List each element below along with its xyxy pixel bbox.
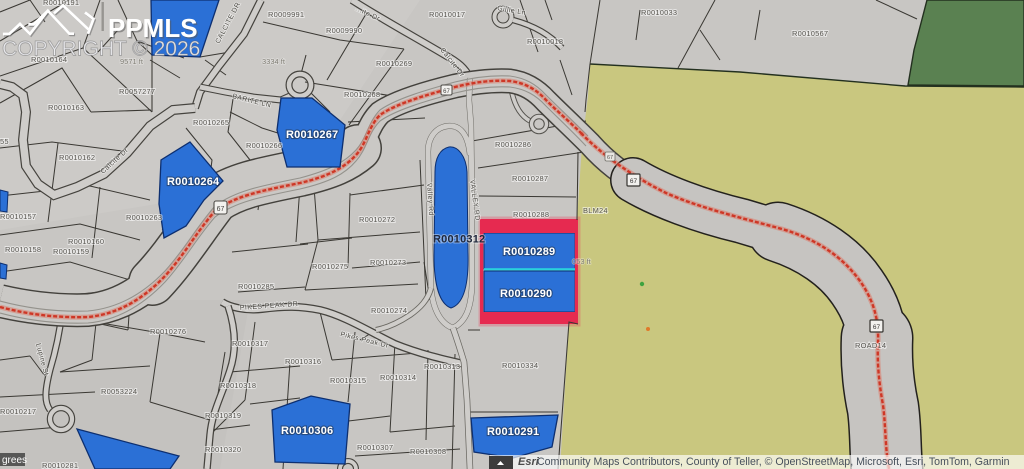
svg-text:R0010319: R0010319 xyxy=(205,411,241,420)
svg-text:R0010265: R0010265 xyxy=(193,118,229,127)
svg-text:R0010334: R0010334 xyxy=(502,361,538,370)
svg-text:R0010281: R0010281 xyxy=(42,461,78,469)
svg-text:R0053224: R0053224 xyxy=(101,387,137,396)
svg-text:R0010289: R0010289 xyxy=(503,246,555,258)
svg-text:67: 67 xyxy=(217,206,225,213)
svg-text:R0010290: R0010290 xyxy=(500,288,552,300)
svg-text:R0010276: R0010276 xyxy=(150,327,186,336)
svg-text:R0010157: R0010157 xyxy=(0,212,36,221)
svg-text:R0010160: R0010160 xyxy=(68,237,104,246)
svg-text:R0057277: R0057277 xyxy=(119,87,155,96)
svg-text:R0010017: R0010017 xyxy=(429,10,465,19)
svg-text:R0010291: R0010291 xyxy=(487,426,539,438)
svg-text:R0010268: R0010268 xyxy=(344,90,380,99)
svg-text:R0009990: R0009990 xyxy=(326,26,362,35)
svg-text:R0010272: R0010272 xyxy=(359,215,395,224)
svg-text:R0010269: R0010269 xyxy=(376,59,412,68)
svg-text:R0010273: R0010273 xyxy=(370,258,406,267)
svg-text:Community Maps Contributors, C: Community Maps Contributors, County of T… xyxy=(537,456,1010,468)
svg-text:R0010315: R0010315 xyxy=(330,376,366,385)
svg-text:R0010320: R0010320 xyxy=(205,445,241,454)
svg-text:R0010266: R0010266 xyxy=(246,141,282,150)
svg-text:R0010275: R0010275 xyxy=(312,262,348,271)
svg-text:R0010312: R0010312 xyxy=(433,234,485,246)
svg-text:R0010217: R0010217 xyxy=(0,407,36,416)
svg-text:55: 55 xyxy=(0,137,9,146)
svg-text:R0010307: R0010307 xyxy=(357,443,393,452)
svg-text:67: 67 xyxy=(630,178,638,185)
svg-text:grees: grees xyxy=(2,455,27,466)
svg-text:R0010158: R0010158 xyxy=(5,245,41,254)
svg-text:R0010313: R0010313 xyxy=(424,362,460,371)
svg-text:67: 67 xyxy=(873,324,881,331)
svg-text:R0010159: R0010159 xyxy=(53,247,89,256)
svg-text:R0010018: R0010018 xyxy=(527,37,563,46)
svg-text:053 ft: 053 ft xyxy=(572,257,592,266)
svg-text:3334 ft: 3334 ft xyxy=(262,57,286,66)
svg-text:R0010285: R0010285 xyxy=(238,282,274,291)
svg-text:R0010318: R0010318 xyxy=(220,381,256,390)
svg-text:R0009991: R0009991 xyxy=(268,10,304,19)
svg-text:R0010567: R0010567 xyxy=(792,29,828,38)
svg-text:R0010308: R0010308 xyxy=(410,447,446,456)
svg-text:R0010162: R0010162 xyxy=(59,153,95,162)
svg-text:R0010267: R0010267 xyxy=(286,129,338,141)
svg-text:R0010286: R0010286 xyxy=(495,140,531,149)
svg-text:R0010033: R0010033 xyxy=(641,8,677,17)
svg-text:R0010316: R0010316 xyxy=(285,357,321,366)
svg-text:R0010163: R0010163 xyxy=(48,103,84,112)
svg-text:ROAD14: ROAD14 xyxy=(855,341,886,350)
svg-text:67: 67 xyxy=(607,155,613,161)
svg-text:R0010317: R0010317 xyxy=(232,339,268,348)
svg-text:67: 67 xyxy=(443,89,450,95)
svg-text:R0010288: R0010288 xyxy=(513,210,549,219)
svg-text:BLM24: BLM24 xyxy=(583,206,608,215)
svg-text:R0010274: R0010274 xyxy=(371,306,407,315)
svg-text:PPMLS: PPMLS xyxy=(108,13,198,43)
svg-text:R0010264: R0010264 xyxy=(167,176,220,188)
svg-text:R0010306: R0010306 xyxy=(281,425,333,437)
svg-text:R0010314: R0010314 xyxy=(380,373,416,382)
svg-text:R0010287: R0010287 xyxy=(512,174,548,183)
svg-text:R0010263: R0010263 xyxy=(126,213,162,222)
